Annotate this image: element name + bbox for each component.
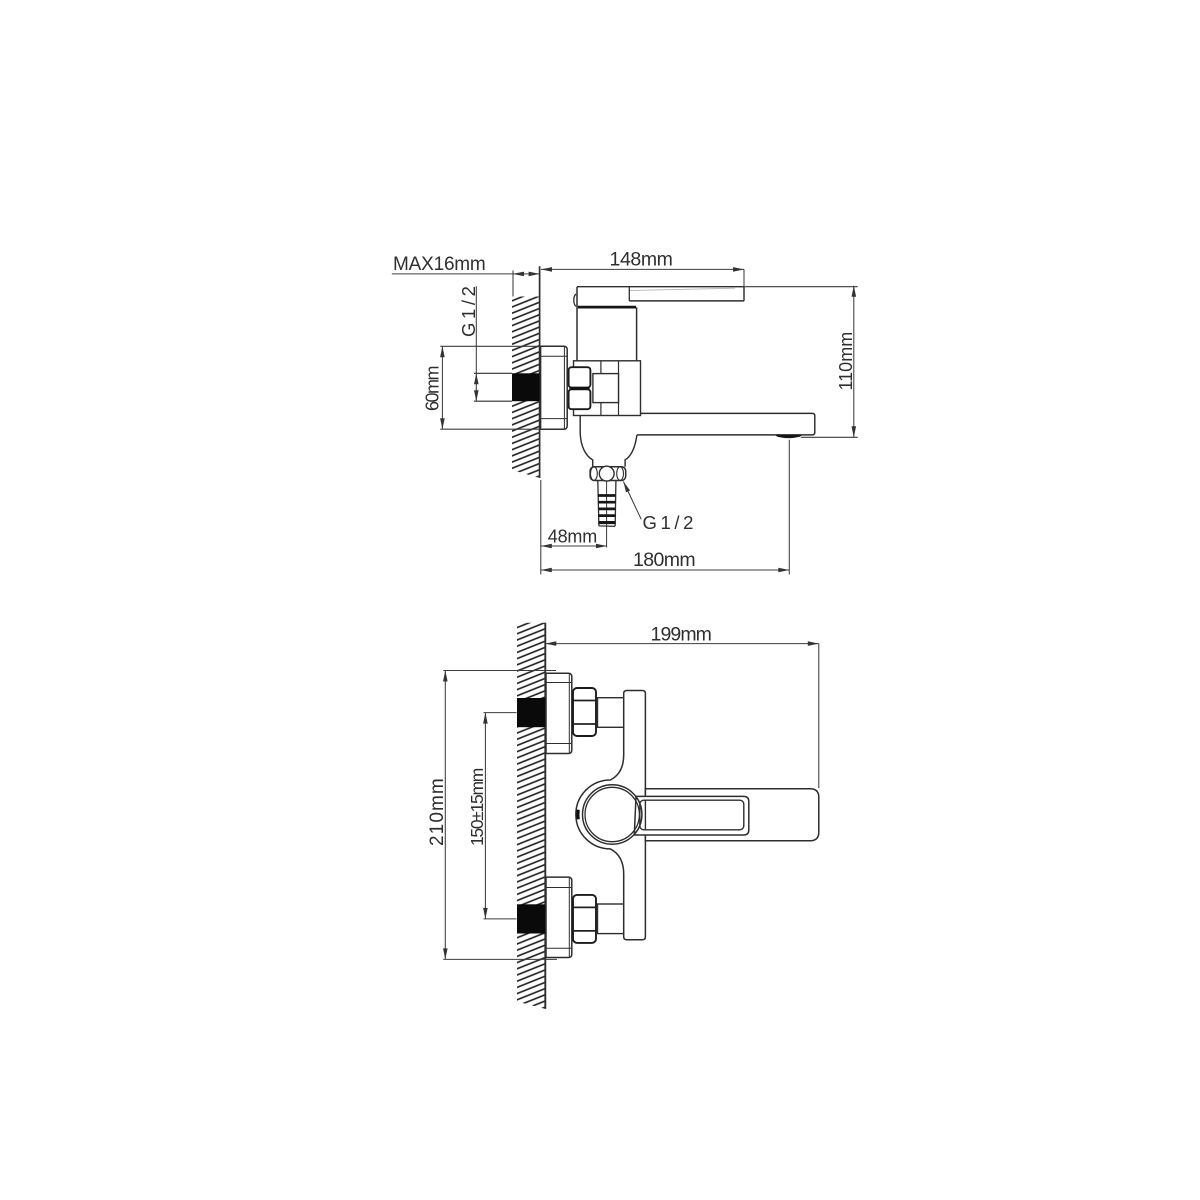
svg-text:210mm: 210mm bbox=[427, 777, 448, 846]
svg-text:60mm: 60mm bbox=[422, 366, 442, 411]
svg-text:G1/2: G1/2 bbox=[458, 282, 479, 337]
svg-text:199mm: 199mm bbox=[651, 623, 712, 645]
svg-text:MAX16mm: MAX16mm bbox=[393, 254, 486, 275]
svg-text:110mm: 110mm bbox=[836, 332, 856, 391]
svg-text:150±15mm: 150±15mm bbox=[467, 768, 487, 846]
svg-text:G1/2: G1/2 bbox=[643, 512, 698, 533]
svg-text:148mm: 148mm bbox=[610, 249, 673, 271]
svg-text:48mm: 48mm bbox=[548, 527, 597, 547]
svg-text:180mm: 180mm bbox=[633, 549, 695, 571]
